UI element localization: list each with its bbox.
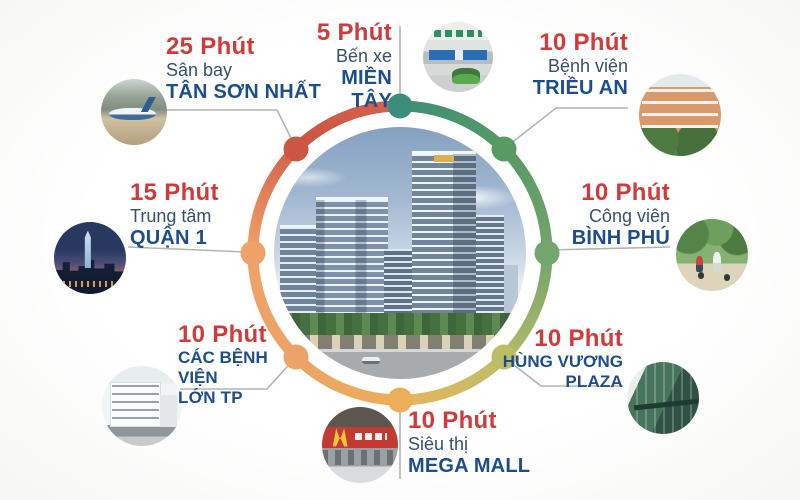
street-trees [274, 313, 526, 335]
poi-binh-phu-park: 10 Phút Công viên BÌNH PHÚ [545, 180, 670, 250]
travel-time: 5 Phút [296, 20, 392, 46]
poi-name: TRIỀU AN [498, 77, 628, 100]
bicycle-wheels [698, 272, 704, 278]
poi-name: MIỀN TÂY [296, 67, 392, 113]
mall-shelves [322, 450, 398, 465]
ring-dot-w [241, 241, 266, 266]
location-infographic: 25 Phút Sân bay TÂN SƠN NHẤT 5 Phút Bến … [0, 0, 800, 500]
child-cyclist [696, 256, 703, 272]
poi-hung-vuong-plaza: 10 Phút HÙNG VƯƠNG PLAZA [498, 326, 623, 392]
photo-city-hospitals [102, 366, 182, 446]
ticket-signs [429, 50, 488, 60]
poi-type: Siêu thị [408, 434, 538, 455]
photo-mega-mall [322, 407, 398, 483]
photo-binh-phu-park [676, 219, 748, 291]
center-project-photo [274, 127, 526, 379]
poi-name: QUẬN 1 [130, 227, 240, 250]
photo-hung-vuong-plaza [627, 362, 699, 434]
city-lights [57, 281, 123, 287]
mega-sign-text [355, 433, 387, 441]
station-sign [434, 30, 482, 36]
green-taxi [452, 68, 480, 83]
hospital-window-rows [112, 385, 158, 423]
photo-district-1-skyline [54, 222, 126, 294]
poi-trieu-an-hospital: 10 Phút Bệnh viện TRIỀU AN [498, 30, 628, 100]
travel-time: 10 Phút [498, 326, 623, 352]
poi-mien-tay-bus-station: 5 Phút Bến xe MIỀN TÂY [296, 20, 392, 113]
poi-city-hospitals: 10 Phút CÁC BỆNH VIỆN LỚN TP [178, 322, 298, 408]
travel-time: 10 Phút [408, 408, 538, 434]
car [362, 357, 380, 364]
poi-type: Bến xe [296, 46, 392, 67]
poi-mega-mall: 10 Phút Siêu thị MEGA MALL [408, 408, 538, 478]
travel-time: 10 Phút [545, 180, 670, 206]
hospital-trees [639, 128, 721, 156]
poi-name: PLAZA [498, 372, 623, 392]
road [274, 349, 526, 379]
poi-type: Bệnh viện [498, 56, 628, 77]
plaza-facade [627, 362, 699, 434]
hospital-windows [642, 89, 717, 132]
photo-mien-tay-bus-station [423, 22, 493, 92]
travel-time: 10 Phút [498, 30, 628, 56]
poi-district-1-center: 15 Phút Trung tâm QUẬN 1 [130, 180, 240, 250]
photo-trieu-an-hospital [639, 74, 721, 156]
poi-type: Công viên [545, 206, 670, 227]
photo-tan-son-nhat-airport [101, 79, 167, 145]
airplane-fuselage [109, 108, 157, 120]
poi-type: Trung tâm [130, 206, 240, 227]
travel-time: 15 Phút [130, 180, 240, 206]
child-cyclist [713, 252, 721, 272]
poi-name: LỚN TP [178, 388, 298, 408]
poi-name: CÁC BỆNH VIỆN [178, 348, 298, 388]
hospital-annex [160, 395, 178, 427]
travel-time: 10 Phút [178, 322, 298, 348]
poi-name: HÙNG VƯƠNG [498, 352, 623, 372]
poi-name: BÌNH PHÚ [545, 227, 670, 250]
mega-m-logo [333, 428, 353, 446]
park-foliage [676, 219, 748, 269]
tower-logo-sign [434, 155, 454, 162]
poi-name: MEGA MALL [408, 455, 538, 478]
